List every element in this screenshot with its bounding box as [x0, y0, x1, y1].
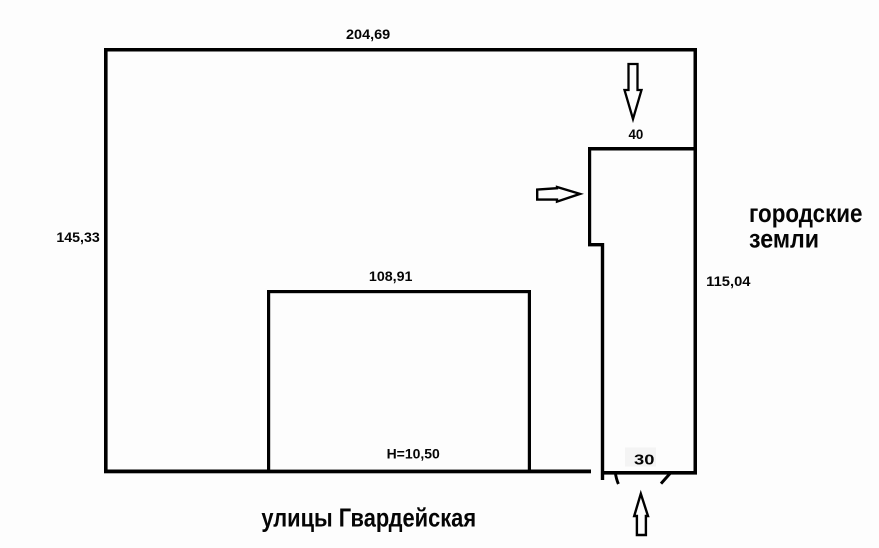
svg-text:40: 40: [629, 126, 644, 142]
svg-text:земли: земли: [749, 224, 819, 254]
svg-text:145,33: 145,33: [56, 229, 100, 245]
svg-text:Н=10,50: Н=10,50: [387, 445, 440, 461]
svg-text:30: 30: [634, 453, 654, 469]
svg-text:улицы Гвардейская: улицы Гвардейская: [261, 502, 476, 532]
svg-text:108,91: 108,91: [369, 268, 413, 284]
svg-text:204,69: 204,69: [346, 26, 390, 42]
svg-text:115,04: 115,04: [706, 273, 751, 289]
